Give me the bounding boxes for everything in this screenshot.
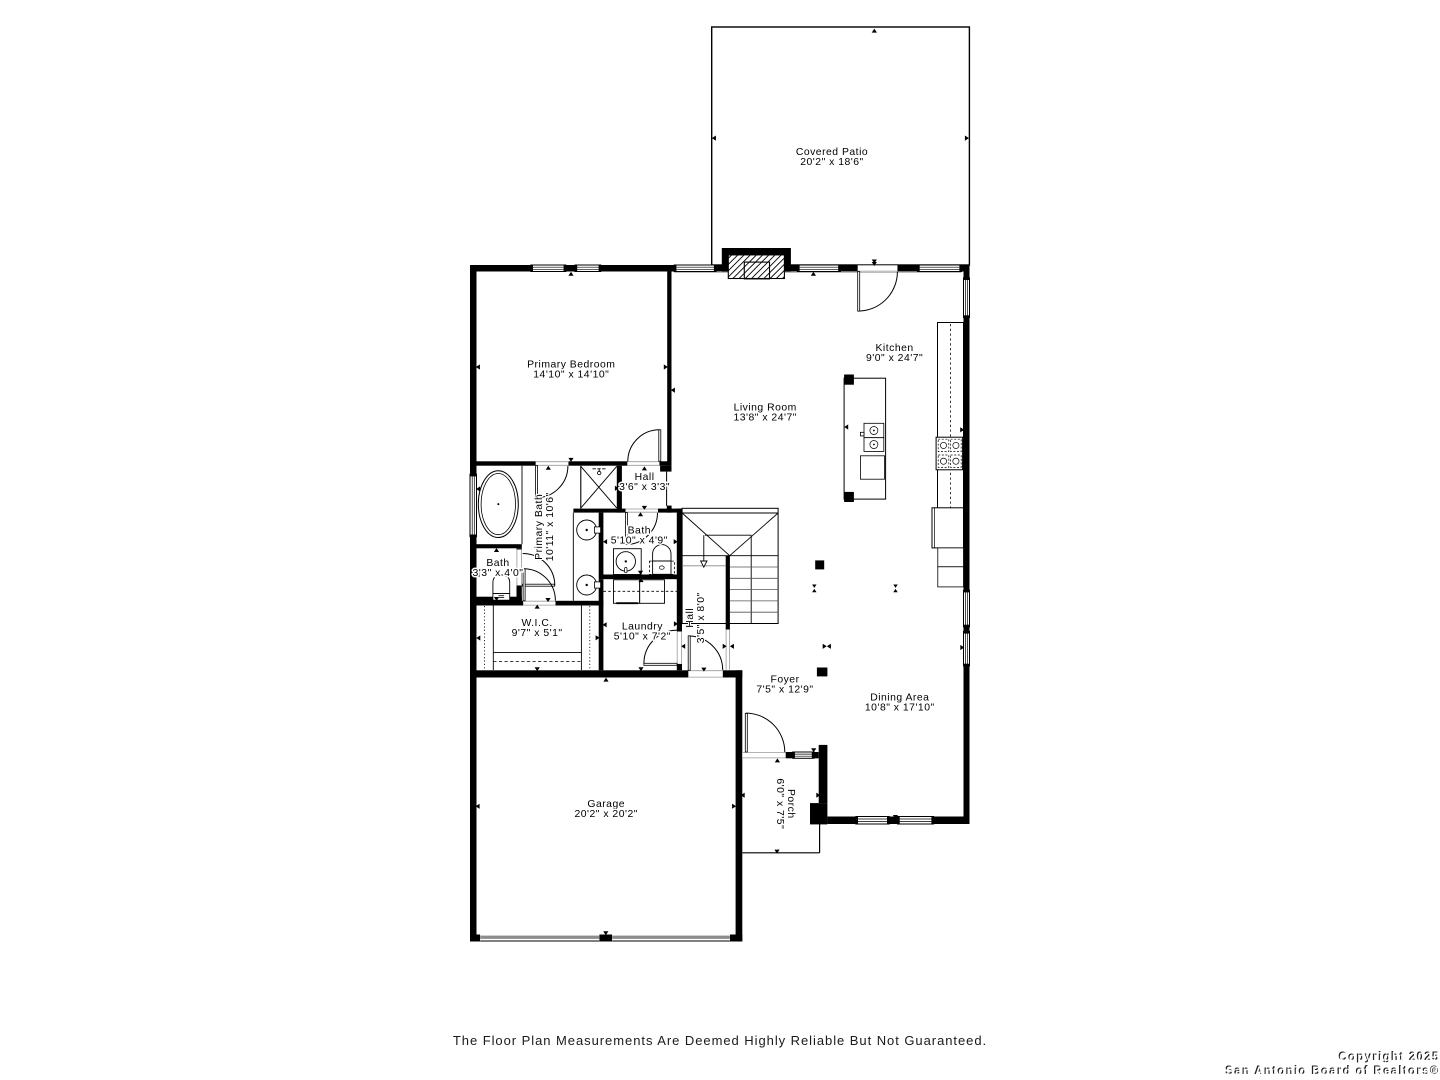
svg-text:9'7" x 5'1": 9'7" x 5'1" [512,628,563,639]
svg-text:9'0" x 24'7": 9'0" x 24'7" [866,353,923,364]
svg-text:3'6" x 3'3": 3'6" x 3'3" [619,482,670,493]
svg-text:20'2" x 18'6": 20'2" x 18'6" [800,157,864,168]
svg-text:20'2" x 20'2": 20'2" x 20'2" [574,809,638,820]
svg-text:5'10" x 4'9": 5'10" x 4'9" [611,536,668,547]
svg-text:10'8" x 17'10": 10'8" x 17'10" [865,703,935,714]
svg-text:3'3" x 4'0": 3'3" x 4'0" [473,568,524,579]
svg-text:13'8" x 24'7": 13'8" x 24'7" [733,412,797,423]
svg-text:7'5" x 12'9": 7'5" x 12'9" [756,685,813,696]
svg-text:14'10" x 14'10": 14'10" x 14'10" [533,370,609,381]
svg-text:5'10" x 7'2": 5'10" x 7'2" [614,632,671,643]
